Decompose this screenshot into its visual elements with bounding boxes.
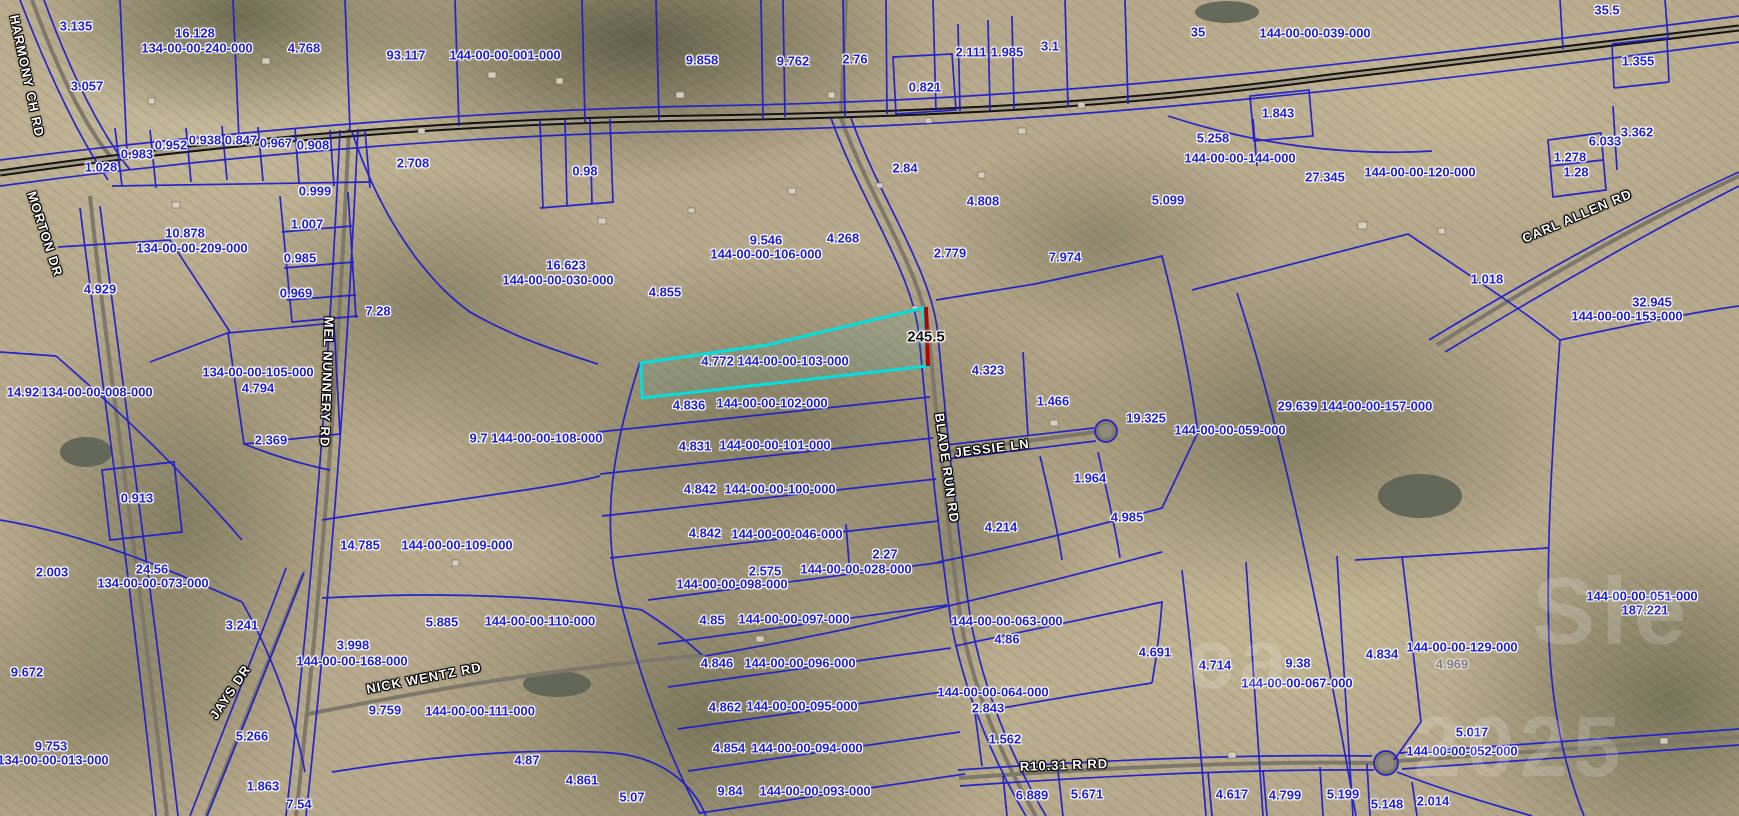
parcel-label: 2.003	[36, 565, 69, 580]
parcel-label: 0.847	[225, 133, 258, 148]
parcel-label: 2.843	[972, 701, 1005, 716]
parcel-label: 9.753	[35, 739, 68, 754]
parcel-label: 7.54	[286, 797, 311, 812]
parcel-label: 144-00-00-120-000	[1364, 165, 1475, 180]
parcel-label: 4.846	[701, 656, 734, 671]
parcel-label: 0.969	[280, 286, 313, 301]
parcel-label: 4.969	[1436, 657, 1469, 672]
parcel-label: 2.27	[872, 547, 897, 562]
parcel-boundary-lines	[0, 0, 1739, 816]
parcel-label: 4.862	[709, 700, 742, 715]
parcel-label: 1.985	[991, 45, 1024, 60]
parcel-label: 144-00-00-030-000	[502, 273, 613, 288]
parcel-label: 144-00-00-063-000	[951, 614, 1062, 629]
parcel-label: 144-00-00-052-000	[1406, 744, 1517, 759]
parcel-label: 144-00-00-039-000	[1259, 26, 1370, 41]
parcel-label: 0.908	[297, 138, 330, 153]
parcel-label: 0.938	[189, 133, 222, 148]
parcel-label: 4.86	[994, 632, 1019, 647]
parcel-label: 134-00-00-105-000	[202, 365, 313, 380]
parcel-label: 144-00-00-028-000	[800, 562, 911, 577]
parcel-label: 5.099	[1152, 193, 1185, 208]
map-vector-layer	[0, 0, 1739, 816]
parcel-label: 2.014	[1417, 794, 1450, 809]
parcel-label: 32.945	[1632, 295, 1672, 310]
parcel-label: 0.985	[284, 251, 317, 266]
road-label-r10-31-r-rd: R10.31 R RD	[1020, 756, 1109, 774]
parcel-label: 2.708	[397, 156, 430, 171]
parcel-label: 5.017	[1456, 725, 1489, 740]
parcel-label: 144-00-00-110-000	[485, 614, 596, 629]
parcel-label: 4.834	[1366, 647, 1399, 662]
parcel-label: 29.639 144-00-00-157-000	[1278, 399, 1433, 414]
parcel-label: 4.985	[1111, 510, 1144, 525]
parcel-label: 144-00-00-168-000	[296, 654, 407, 669]
parcel-label: 144-00-00-129-000	[1406, 640, 1517, 655]
parcel-label: 4.831	[679, 439, 712, 454]
parcel-label: 4.617	[1216, 787, 1249, 802]
parcel-label: 0.999	[299, 184, 332, 199]
parcel-label: 10.878	[165, 226, 205, 241]
parcel-label: 14.92	[7, 385, 40, 400]
parcel-label: 27.345	[1305, 170, 1345, 185]
parcel-label: 1.843	[1262, 106, 1295, 121]
parcel-label: 5.885	[426, 615, 459, 630]
parcel-label: 0.821	[909, 80, 942, 95]
parcel-label: 9.546	[750, 233, 783, 248]
parcel-label: 144-00-00-046-000	[731, 527, 842, 542]
parcel-label: 14.785	[340, 538, 380, 553]
parcel-label: 4.929	[84, 282, 117, 297]
parcel-label: 134-00-00-209-000	[136, 241, 247, 256]
parcel-label: 144-00-00-059-000	[1174, 423, 1285, 438]
parcel-label: 4.768	[288, 41, 321, 56]
parcel-label: 5.266	[236, 729, 269, 744]
parcel-label: 16.128	[175, 26, 215, 41]
parcel-label: 0.983	[121, 147, 154, 162]
parcel-label: 9.858	[686, 53, 719, 68]
parcel-label: 0.952	[155, 138, 188, 153]
parcel-label: 1.278	[1554, 150, 1587, 165]
parcel-label: 3.241	[226, 618, 259, 633]
parcel-label: 9.84	[717, 784, 742, 799]
parcel-label: 2.779	[934, 246, 967, 261]
parcel-label: 1.007	[291, 217, 324, 232]
parcel-label: 9.759	[369, 703, 402, 718]
parcel-label: 144-00-00-106-000	[710, 247, 821, 262]
parcel-label: 7.974	[1049, 250, 1082, 265]
parcel-label: 144-00-00-097-000	[738, 612, 849, 627]
parcel-label: 134-00-00-240-000	[141, 41, 252, 56]
parcel-label: 144-00-00-102-000	[716, 396, 827, 411]
parcel-label: 3.135	[60, 19, 93, 34]
parcel-label: 1.018	[1471, 272, 1504, 287]
parcel-label: 1.964	[1074, 471, 1107, 486]
parcel-label: 16.623	[546, 258, 586, 273]
parcel-label: 2.84	[892, 161, 917, 176]
parcel-label: 144-00-00-109-000	[401, 538, 512, 553]
selected-parcel-label: 4.772 144-00-00-103-000	[701, 354, 848, 369]
parcel-label: 4.861	[566, 773, 599, 788]
parcel-label: 144-00-00-101-000	[719, 438, 830, 453]
parcel-label: 5.07	[619, 790, 644, 805]
parcel-label: 9.38	[1285, 656, 1310, 671]
parcel-label: 5.258	[1197, 131, 1230, 146]
parcel-label: 1.863	[247, 779, 280, 794]
parcel-label: 0.967	[260, 136, 293, 151]
parcel-label: 4.854	[713, 741, 746, 756]
parcel-label: 4.794	[242, 381, 275, 396]
parcel-label: 6.889	[1016, 788, 1049, 803]
parcel-label: 187.221	[1622, 603, 1669, 618]
parcel-label: 4.799	[1269, 788, 1302, 803]
parcel-label: 2.369	[255, 433, 288, 448]
parcel-label: 35.5	[1594, 3, 1619, 18]
parcel-label: 1.466	[1037, 394, 1070, 409]
parcel-label: 4.691	[1139, 645, 1172, 660]
parcel-label: 1.355	[1622, 54, 1655, 69]
parcel-label: 0.98	[572, 164, 597, 179]
parcel-label: 144-00-00-093-000	[759, 784, 870, 799]
parcel-label: 4.842	[689, 526, 722, 541]
selected-parcel-highlight[interactable]	[641, 307, 928, 398]
parcel-label: 144-00-00-067-000	[1241, 676, 1352, 691]
parcel-label: 9.7 144-00-00-108-000	[470, 431, 603, 446]
parcel-label: 134-00-00-073-000	[97, 576, 208, 591]
parcel-label: 1.562	[989, 732, 1022, 747]
parcel-label: 4.268	[827, 231, 860, 246]
parcel-label: 144-00-00-144-000	[1184, 151, 1295, 166]
parcel-label: 7.28	[365, 304, 390, 319]
parcel-label: 3.057	[71, 79, 104, 94]
parcel-label: 4.214	[985, 520, 1018, 535]
parcel-label: 4.85	[699, 613, 724, 628]
parcel-label: 4.87	[514, 753, 539, 768]
parcel-label: 144-00-00-064-000	[937, 685, 1048, 700]
parcel-label: 5.199	[1327, 787, 1360, 802]
parcel-label: 4.714	[1199, 658, 1232, 673]
parcel-label: 2.76	[842, 52, 867, 67]
parcel-label: 4.836	[673, 398, 706, 413]
parcel-label: 4.808	[967, 194, 1000, 209]
parcel-label: 1.028	[85, 160, 118, 175]
parcel-label: 3.1	[1041, 39, 1059, 54]
parcel-label: 144-00-00-111-000	[425, 704, 535, 719]
parcel-label: 19.325	[1126, 411, 1166, 426]
parcel-label: 134-00-00-008-000	[41, 385, 152, 400]
parcel-label: 144-00-00-051-000	[1586, 589, 1697, 604]
dimension-label: 245.5	[907, 329, 945, 346]
parcel-label: 5.671	[1071, 787, 1104, 802]
parcel-label: 35	[1191, 25, 1205, 40]
parcel-label: 4.323	[972, 363, 1005, 378]
parcel-label: 134-00-00-013-000	[0, 753, 109, 768]
parcel-label: 3.362	[1621, 125, 1654, 140]
parcel-label: 144-00-00-001-000	[449, 48, 560, 63]
parcel-label: 144-00-00-096-000	[744, 656, 855, 671]
parcel-label: 9.672	[11, 665, 44, 680]
parcel-label: 1.28	[1563, 165, 1588, 180]
minor-roads	[32, 0, 1739, 816]
parcel-label: 2.111	[955, 45, 986, 60]
parcel-label: 4.842	[684, 482, 717, 497]
parcel-label: 144-00-00-100-000	[724, 482, 835, 497]
parcel-label: 5.148	[1371, 797, 1404, 812]
parcel-label: 93.117	[386, 48, 425, 63]
parcel-label: 144-00-00-153-000	[1571, 309, 1682, 324]
parcel-label: 144-00-00-098-000	[676, 577, 787, 592]
parcel-label: 0.913	[121, 491, 154, 506]
parcel-label: 144-00-00-095-000	[746, 699, 857, 714]
parcel-label: 144-00-00-094-000	[751, 741, 862, 756]
parcel-label: 4.855	[649, 285, 682, 300]
parcel-label: 6.033	[1589, 134, 1622, 149]
parcel-label: 24.56	[136, 562, 169, 577]
gis-parcel-map[interactable]: 3.13516.128134-00-00-240-0004.76893.1171…	[0, 0, 1739, 816]
parcel-label: 3.998	[337, 638, 370, 653]
parcel-label: 9.762	[777, 54, 810, 69]
